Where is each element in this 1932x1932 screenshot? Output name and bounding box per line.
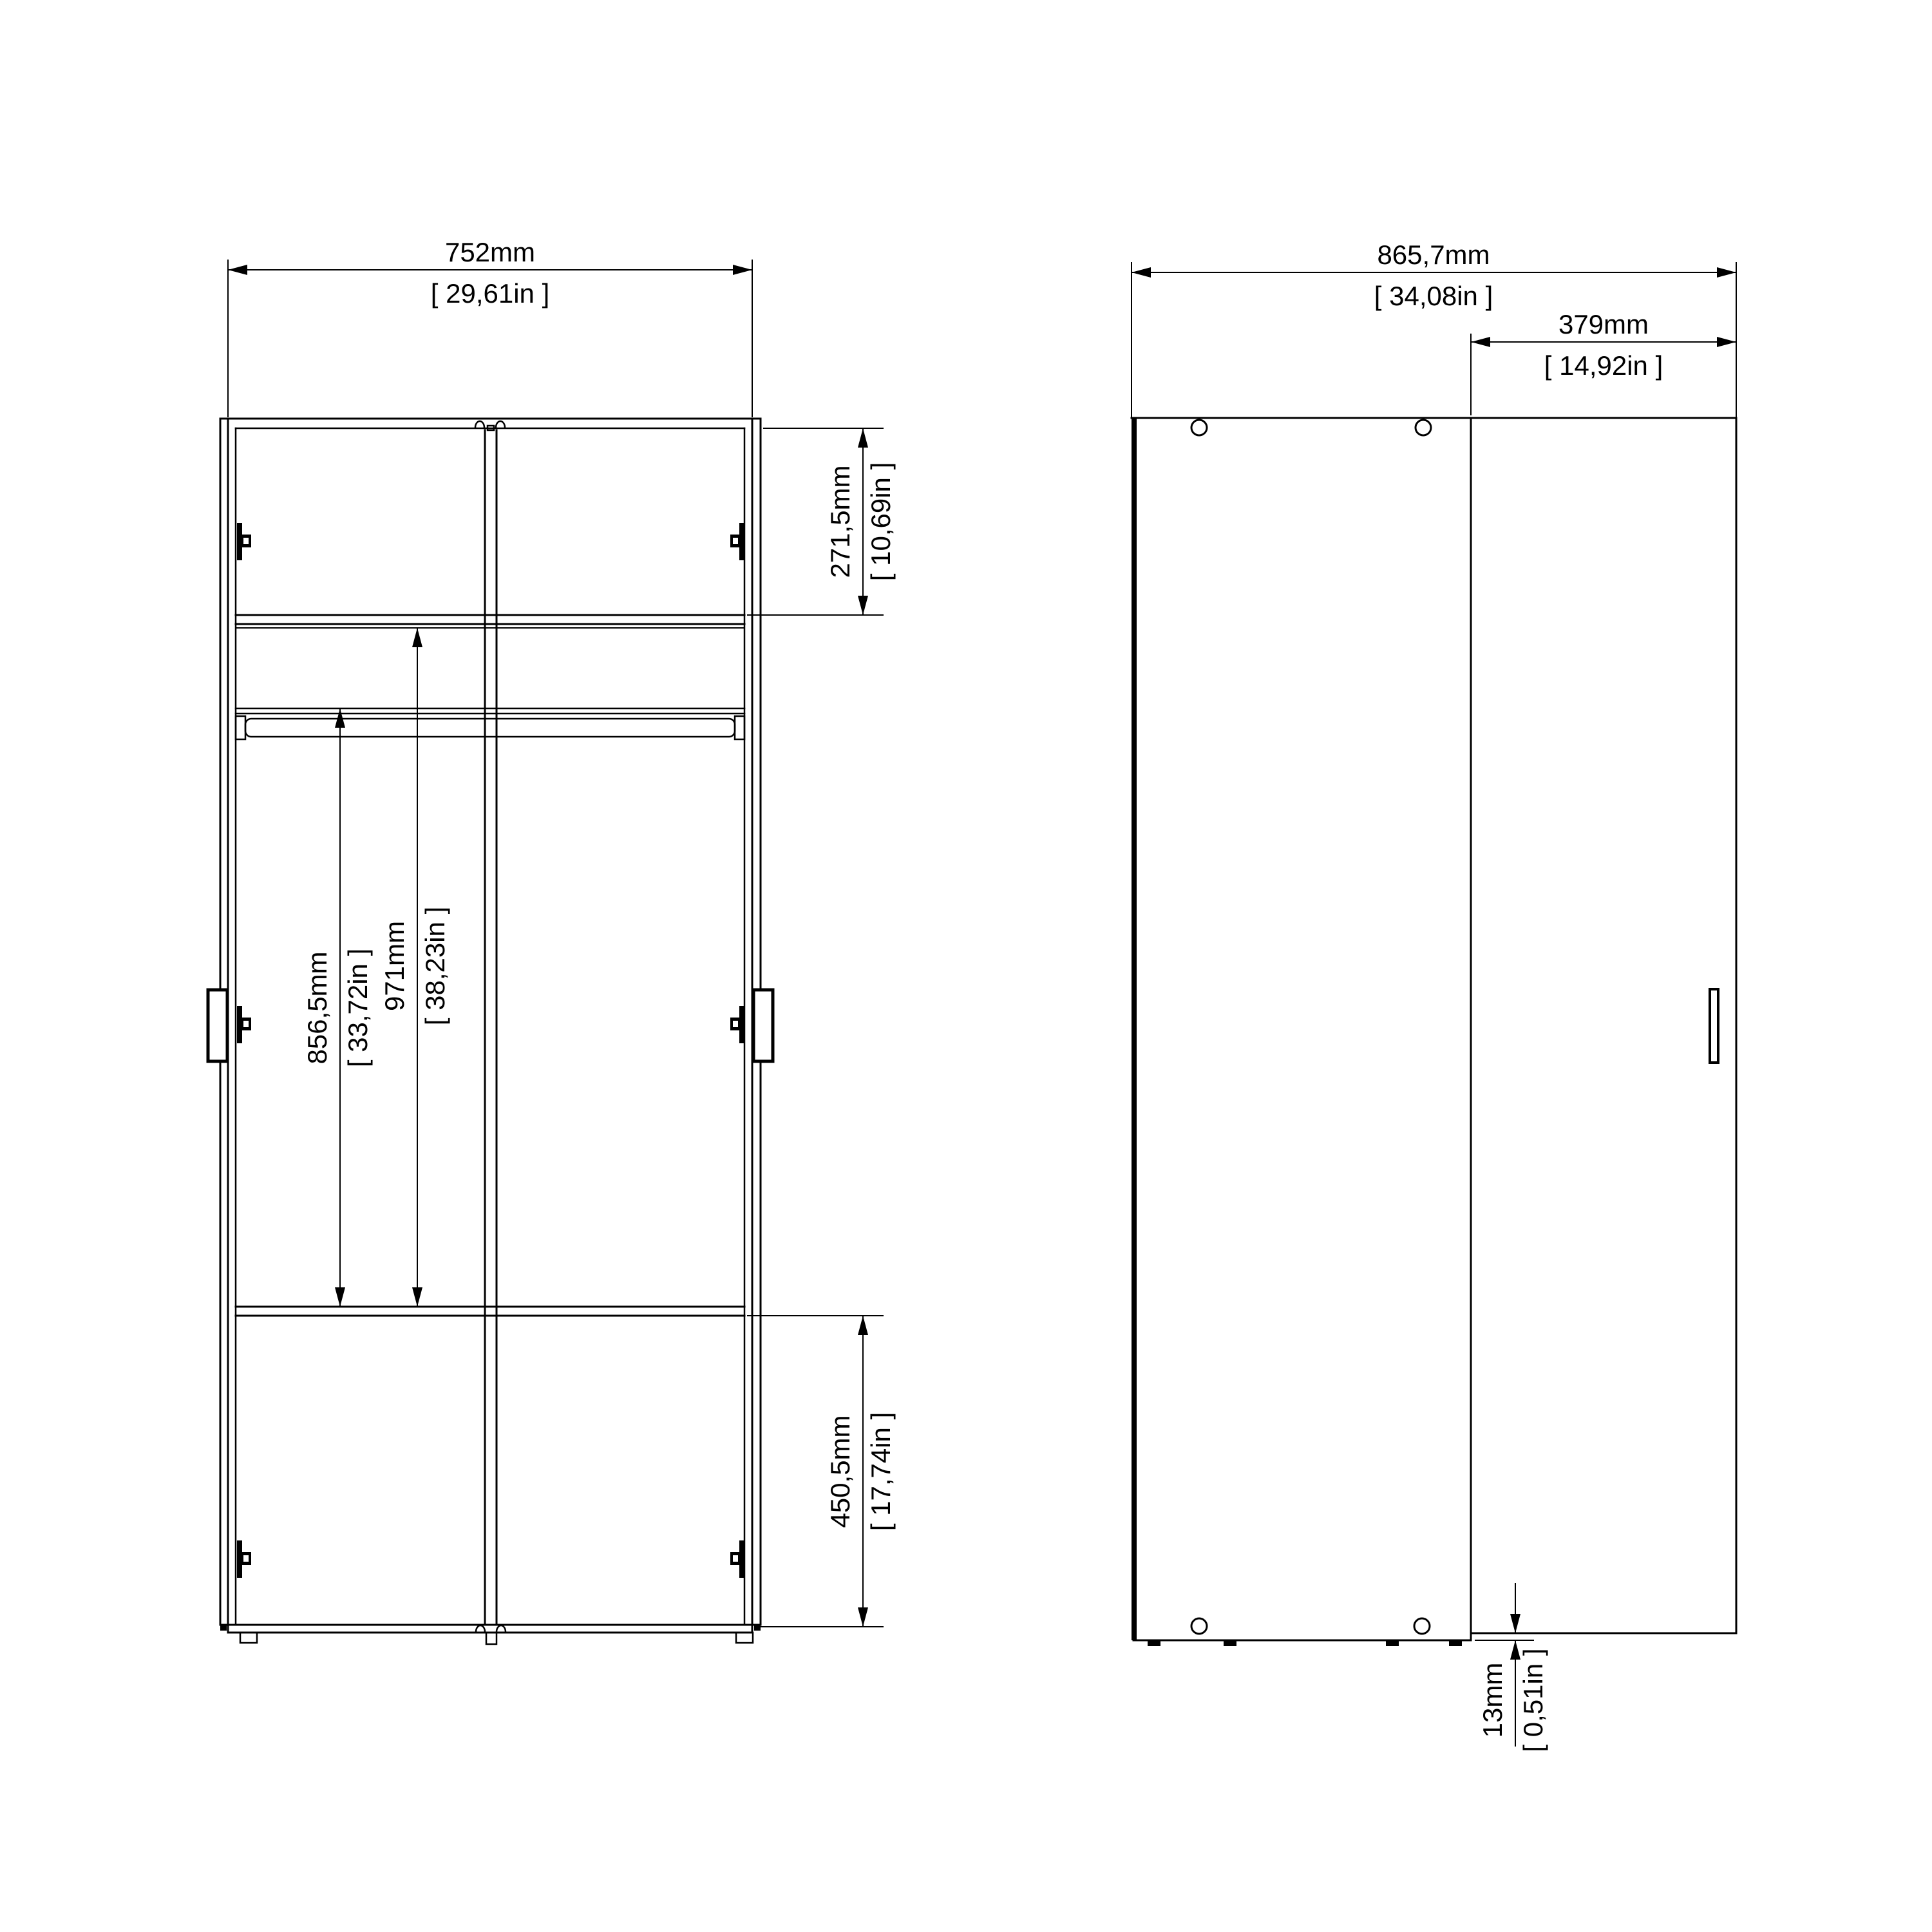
dim-front-bottom-section-in: [ 17,74in ]	[866, 1412, 896, 1531]
dim-front-top-section-in: [ 10,69in ]	[866, 462, 896, 581]
dim-front-width-mm: 752mm	[445, 237, 535, 267]
dim-front-width-in: [ 29,61in ]	[431, 278, 549, 308]
side-foot-4	[1449, 1640, 1462, 1646]
cam-hole-bottom-left	[1191, 1618, 1207, 1634]
dim-side-door-width-in: [ 14,92in ]	[1544, 350, 1663, 381]
front-door-guide-right	[754, 1625, 761, 1631]
dim-front-top-section-mm: 271,5mm	[825, 465, 855, 578]
dim-side-width-in: [ 34,08in ]	[1374, 281, 1493, 311]
cam-hole-bottom-right	[1414, 1618, 1430, 1634]
drawing-background	[0, 0, 1932, 1932]
right-door-handle	[753, 990, 773, 1061]
left-door-handle	[208, 990, 227, 1061]
wardrobe-dimension-drawing: 752mm [ 29,61in ] 271,5mm [ 10,69in ] 85…	[0, 0, 1932, 1932]
side-foot-2	[1224, 1640, 1236, 1646]
dim-side-door-width-mm: 379mm	[1558, 309, 1649, 339]
roller-right-upper-hole	[733, 538, 738, 544]
side-door-handle-slot	[1710, 989, 1718, 1063]
dim-front-rail-height-mm: 856,5mm	[302, 951, 332, 1064]
cam-hole-top-left	[1191, 420, 1207, 435]
roller-left-middle-hole	[243, 1021, 249, 1027]
cam-hole-top-right	[1416, 420, 1431, 435]
roller-right-lower-hole	[733, 1555, 738, 1562]
roller-left-lower-hole	[243, 1555, 249, 1562]
dim-side-base-gap-in: [ 0,51in ]	[1518, 1648, 1548, 1752]
dim-side-width-mm: 865,7mm	[1377, 240, 1490, 270]
roller-left-upper-hole	[243, 538, 249, 544]
dim-front-bottom-section-mm: 450,5mm	[825, 1415, 855, 1528]
dim-side-base-gap-mm: 13mm	[1477, 1663, 1508, 1738]
side-foot-3	[1386, 1640, 1399, 1646]
front-door-guide-left	[220, 1625, 227, 1631]
dim-front-interior-height-in: [ 38,23in ]	[420, 907, 450, 1025]
side-front-edge-panel	[1132, 419, 1137, 1640]
roller-right-middle-hole	[733, 1021, 738, 1027]
side-foot-1	[1148, 1640, 1160, 1646]
dim-front-interior-height-mm: 971mm	[379, 921, 410, 1011]
dim-front-rail-height-in: [ 33,72in ]	[343, 949, 373, 1067]
